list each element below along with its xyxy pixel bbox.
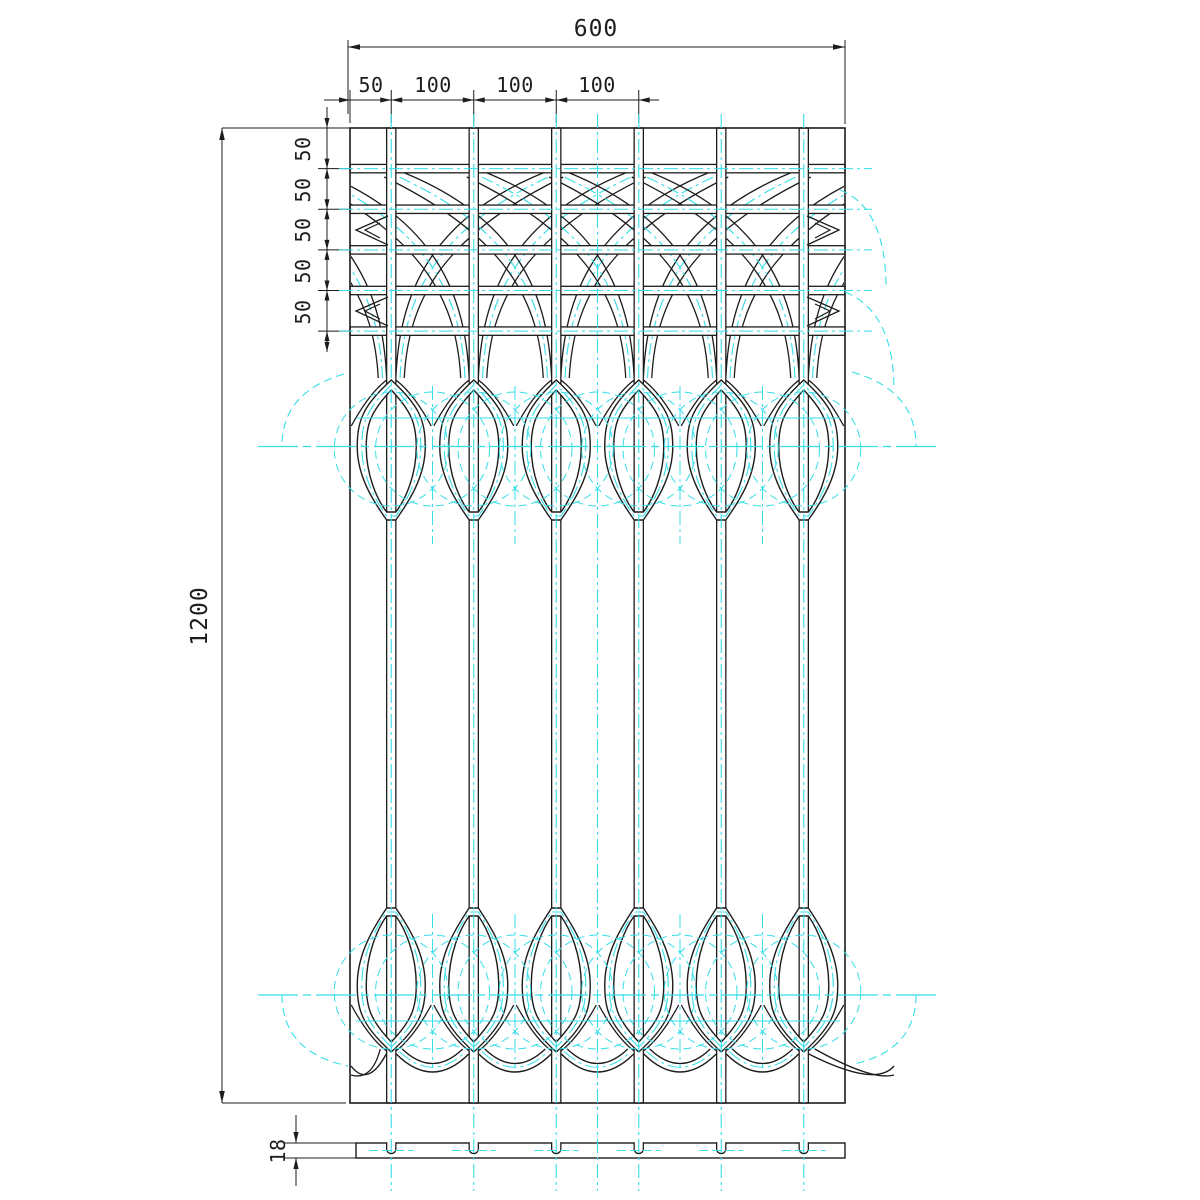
dim-left-50-4-label: 50 — [291, 258, 315, 283]
dim-overall-height-label: 1200 — [187, 586, 213, 645]
dim-overall-width-label: 600 — [574, 16, 619, 42]
grille-technical-drawing: 600 50 100 100 100 50 50 50 50 50 1200 1… — [0, 0, 1200, 1200]
drawing-canvas: 600 50 100 100 100 50 50 50 50 50 1200 1… — [0, 0, 1200, 1200]
dim-chain-100b-label: 100 — [496, 73, 534, 97]
dim-left-50-5-label: 50 — [291, 299, 315, 324]
drawing-geometry — [219, 40, 976, 1191]
dim-left-50-3-label: 50 — [291, 217, 315, 242]
dim-thickness-label: 18 — [266, 1138, 290, 1163]
dim-chain-50-label: 50 — [358, 73, 383, 97]
dim-chain-100a-label: 100 — [414, 73, 452, 97]
dim-chain-100c-label: 100 — [578, 73, 616, 97]
dim-left-50-2-label: 50 — [291, 177, 315, 202]
dim-left-50-1-label: 50 — [291, 136, 315, 161]
